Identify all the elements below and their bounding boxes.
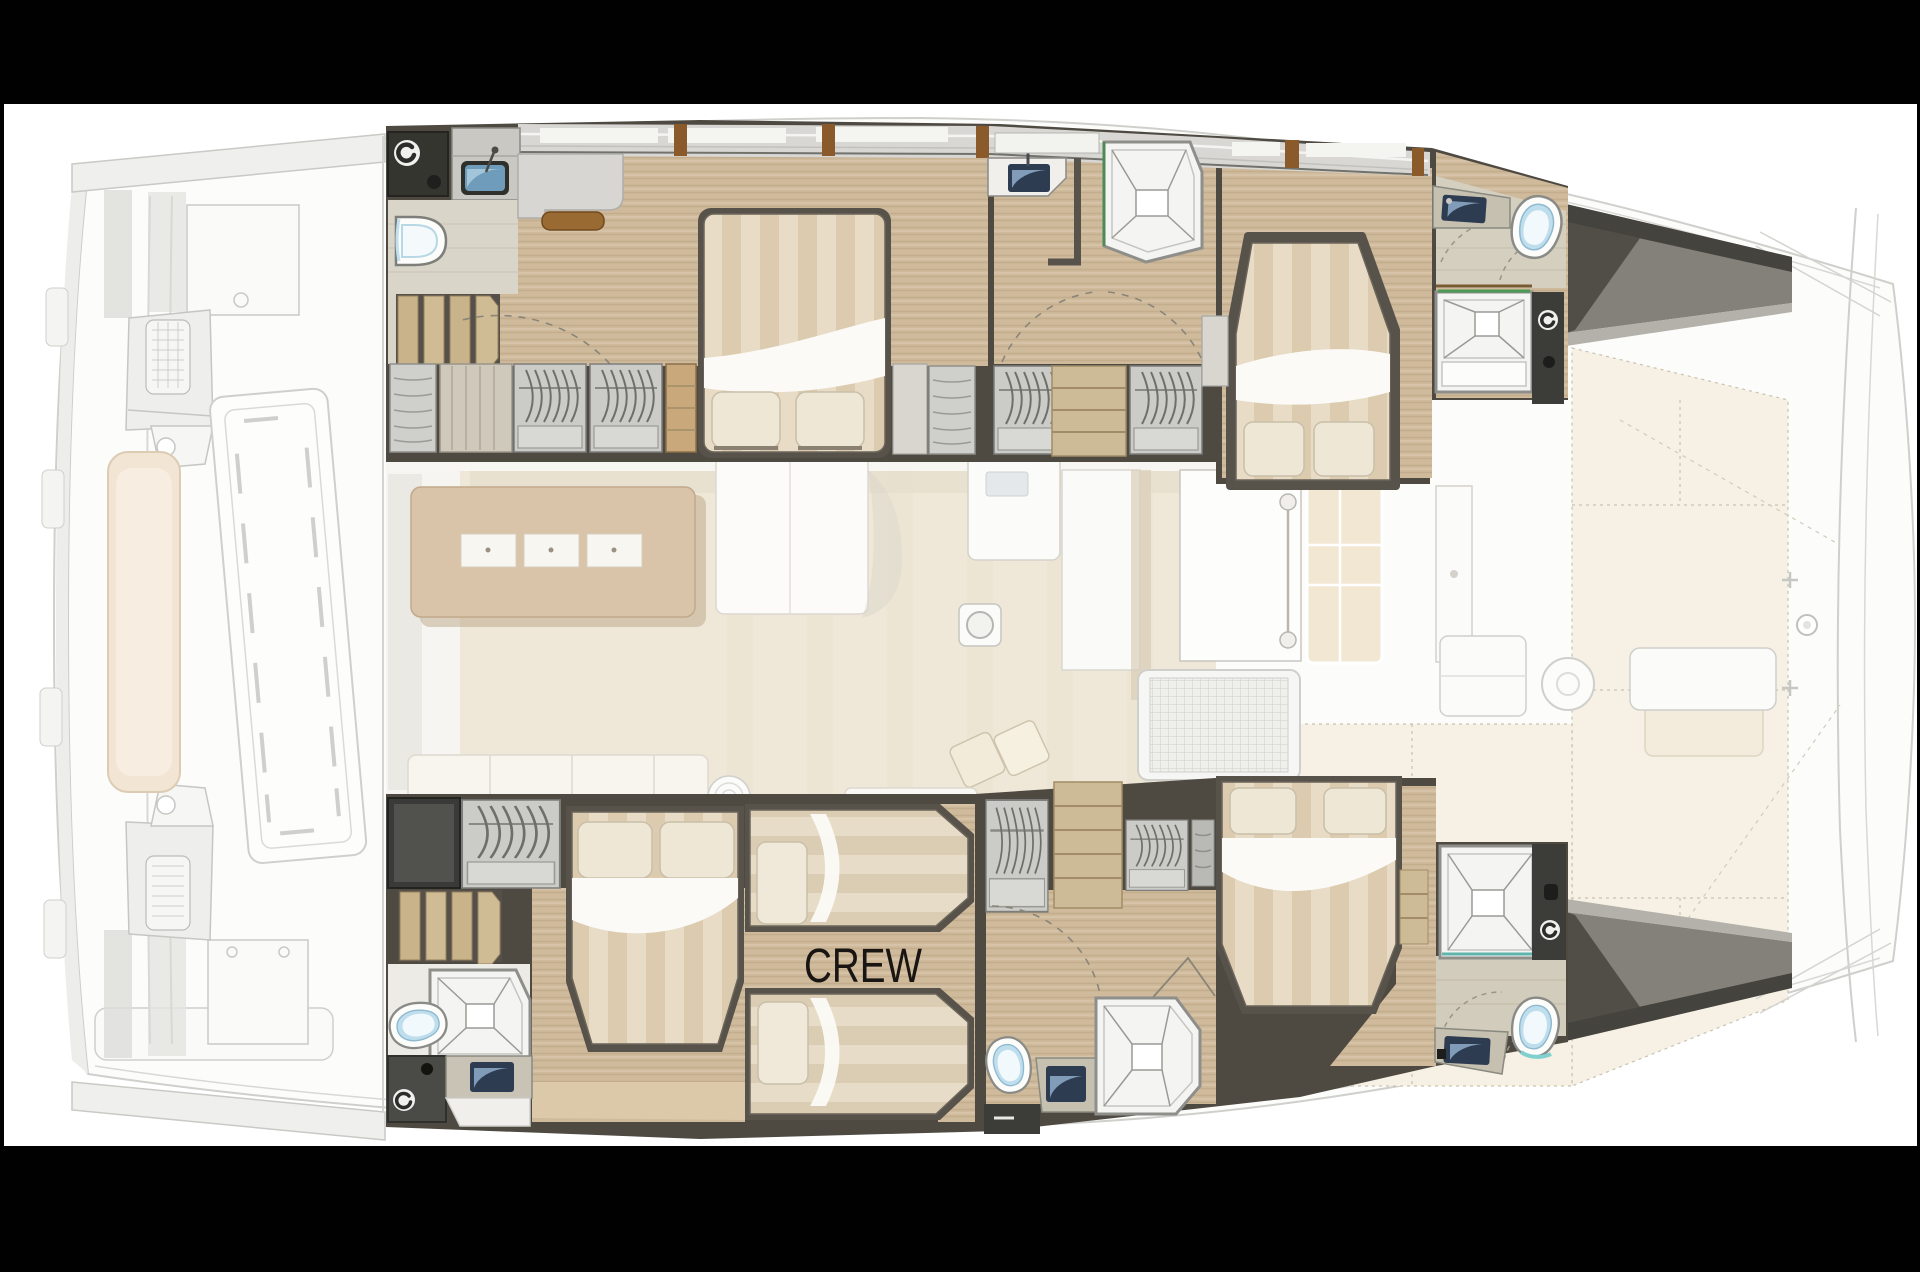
svg-text:CREW: CREW [804,940,923,993]
